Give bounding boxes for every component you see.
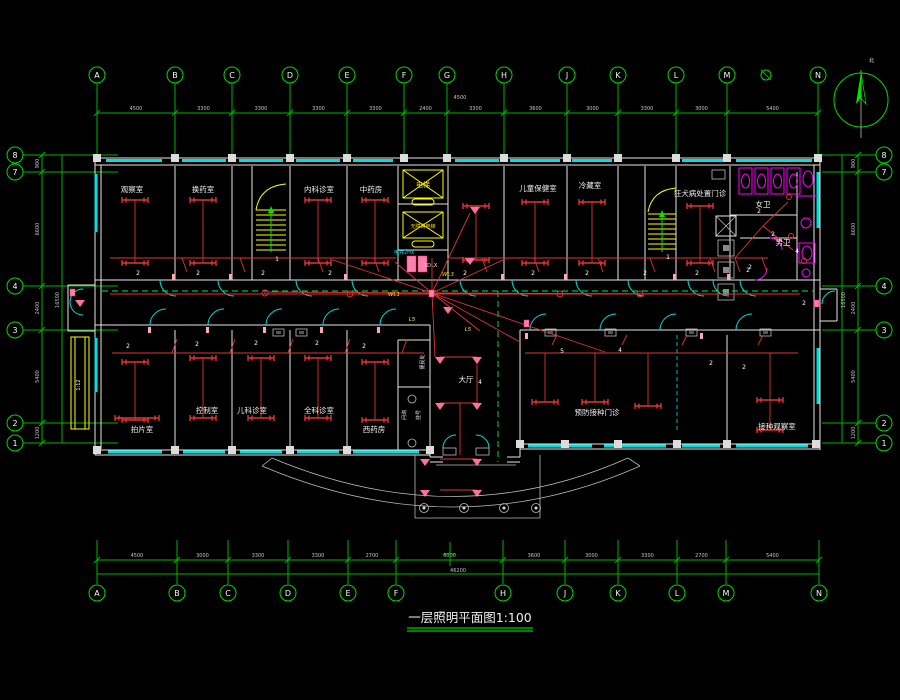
ramp-label: 1:12 <box>76 379 82 390</box>
switch-label: 2 <box>362 343 366 350</box>
window <box>736 445 808 448</box>
dim-text: 4500 <box>454 95 467 101</box>
window <box>353 451 419 454</box>
room-label: 换药室 <box>192 184 215 194</box>
dim-text: 3000 <box>586 106 599 112</box>
door-arc <box>208 309 224 325</box>
window <box>95 174 98 232</box>
dim-text: 3300 <box>312 106 325 112</box>
shaft-x <box>716 216 736 236</box>
switch-label: 2 <box>261 270 265 277</box>
dim-text: 3300 <box>255 106 268 112</box>
switch-label: 2 <box>643 270 647 277</box>
switch-label: 2 <box>196 270 200 277</box>
wc-toilet <box>803 171 813 187</box>
vestibule-walls <box>68 285 837 331</box>
window <box>95 338 98 392</box>
window <box>182 159 226 162</box>
axis-label: K <box>615 71 621 80</box>
dim-text: 900 <box>851 159 857 169</box>
switch-label: 2 <box>195 341 199 348</box>
switch-tick <box>622 335 627 345</box>
wc-toilet <box>774 174 782 188</box>
downlight <box>472 403 482 410</box>
room-label: 中药房 <box>360 184 383 194</box>
switch-tick <box>650 258 655 272</box>
dim-text: 3000 <box>695 106 708 112</box>
column <box>171 154 179 162</box>
axis-label: H <box>500 589 506 598</box>
room-label: 冷藏室 <box>579 180 602 190</box>
axis-label: C <box>229 71 235 80</box>
shaft-label: 电井2HX <box>394 249 415 256</box>
switch-label: 2 <box>695 270 699 277</box>
lighting-fixtures <box>70 197 819 497</box>
room-label: 内科诊室 <box>304 184 334 194</box>
axis-label: A <box>94 71 100 80</box>
wire-tag: L5 <box>409 317 416 323</box>
column <box>228 446 236 454</box>
axis-label: A <box>94 589 100 598</box>
dim-text: 3300 <box>312 553 325 559</box>
wall-vent-core <box>689 331 694 334</box>
axis-label: B <box>174 589 180 598</box>
door-jamb <box>172 274 175 280</box>
wc-sink <box>802 269 810 277</box>
outlet-box <box>524 320 529 327</box>
door-jamb <box>727 274 730 280</box>
dim-text: 6600 <box>851 223 857 236</box>
window <box>108 451 162 454</box>
room-label: 西药房 <box>363 424 386 434</box>
switch-label: 2 <box>802 300 806 307</box>
portico-column-core <box>503 507 506 510</box>
title-block: 一层照明平面图1:100 <box>407 610 533 631</box>
dim-text: 3300 <box>369 106 382 112</box>
window <box>240 451 282 454</box>
axis-label: J <box>565 71 568 80</box>
axis-label: E <box>345 589 350 598</box>
dim-text: 3300 <box>252 553 265 559</box>
north-needle-half <box>856 72 861 104</box>
downlight <box>470 207 480 214</box>
counter-fixture <box>408 395 416 403</box>
switch-label: 2 <box>136 270 140 277</box>
wc-toilet <box>790 174 798 188</box>
door-jamb <box>320 327 323 333</box>
column <box>228 154 236 162</box>
switch-label: 2 <box>126 343 130 350</box>
dim-text: 5400 <box>766 106 779 112</box>
window <box>817 348 820 404</box>
window <box>353 159 393 162</box>
room-label: 狂犬病处置门诊 <box>674 188 727 198</box>
column <box>516 440 524 448</box>
portico-column-core <box>423 507 426 510</box>
door-jamb <box>377 327 380 333</box>
dim-text: 2700 <box>695 553 708 559</box>
wc-toilet <box>742 174 750 188</box>
elevator-label: 电梯 <box>416 180 430 189</box>
dim-text: 4500 <box>130 106 143 112</box>
downlight <box>75 300 85 307</box>
axis-label: E <box>344 71 349 80</box>
registration-label: 挂号 <box>415 410 422 420</box>
entrance-door-leaf <box>443 448 456 455</box>
switch-tick <box>552 335 557 345</box>
dim-text: 900 <box>35 159 41 169</box>
door-jamb <box>564 274 567 280</box>
dim-text: 16500 <box>841 292 847 308</box>
column <box>171 446 179 454</box>
switch-label: 2 <box>531 270 535 277</box>
dim-text: 3300 <box>641 106 654 112</box>
downlight <box>472 357 482 364</box>
column <box>343 154 351 162</box>
door-jamb <box>344 274 347 280</box>
switch-tick <box>762 258 767 272</box>
axis-label: M <box>723 589 730 598</box>
axis-label: 7 <box>12 168 17 177</box>
landings-portico <box>252 258 676 518</box>
door-jamb <box>673 274 676 280</box>
entrance-door-leaf <box>476 448 489 455</box>
switch-label: 2 <box>709 360 713 367</box>
panel-label: 1DLX <box>424 263 438 269</box>
switch-tick <box>182 258 187 272</box>
window <box>297 451 339 454</box>
window <box>106 159 162 162</box>
axis-label: B <box>172 71 178 80</box>
axis-label: 2 <box>12 419 17 428</box>
floorplan-canvas: ABCDEFGHJKLMNABCDEFHJKLMN874321874321 45… <box>0 0 900 700</box>
wc-stall <box>755 168 768 194</box>
entrance-marks <box>444 542 503 566</box>
dim-text: 2700 <box>366 553 379 559</box>
corridor-walls <box>95 280 820 330</box>
switch-tick <box>758 335 763 345</box>
column <box>426 446 434 454</box>
door-jamb <box>148 327 151 333</box>
dim-text: 3000 <box>585 553 598 559</box>
outlet-box <box>70 289 75 296</box>
switch-tick <box>318 258 323 272</box>
dim-text: 3300 <box>641 553 654 559</box>
toilet-wiring <box>735 202 793 258</box>
axis-label: D <box>285 589 291 598</box>
axis-label: H <box>501 71 507 80</box>
room-label: 控制室 <box>196 405 219 415</box>
dim-text: 3600 <box>529 106 542 112</box>
door-jamb <box>700 333 703 339</box>
window <box>604 445 666 448</box>
pipe-shaft-core <box>723 267 729 273</box>
axis-label: D <box>287 71 293 80</box>
small-labels: 2222222222222222222224445WL1L5L5WL3 <box>126 208 806 386</box>
ceiling-lamp-dot <box>349 293 351 295</box>
column <box>343 446 351 454</box>
column <box>93 154 101 162</box>
column <box>723 154 731 162</box>
circuit-label: 5 <box>560 348 564 355</box>
axis-label: C <box>225 589 231 598</box>
dim-text: 16500 <box>55 292 61 308</box>
room-label: 拍片室 <box>131 424 154 434</box>
downlight <box>420 459 430 466</box>
axis-label: F <box>402 71 407 80</box>
column <box>400 154 408 162</box>
dim-text: 2400 <box>35 302 41 315</box>
north-label: 北 <box>869 57 874 64</box>
axis-label: J <box>563 589 566 598</box>
exhaust-fan <box>712 170 725 179</box>
convenience-label: 便民处 <box>419 354 426 369</box>
wire-tag: WL3 <box>442 272 455 278</box>
switch-label: 2 <box>254 340 258 347</box>
axis-label: 7 <box>881 168 886 177</box>
window <box>239 159 283 162</box>
column <box>93 446 101 454</box>
outlet <box>787 195 792 200</box>
column <box>286 446 294 454</box>
door-jamb <box>501 274 504 280</box>
column <box>443 154 451 162</box>
axis-label: 8 <box>881 151 886 160</box>
ceiling-lamp-dot <box>264 292 266 294</box>
homerun-wire <box>432 293 435 357</box>
dim-text: 3600 <box>528 553 541 559</box>
axis-label: N <box>815 71 821 80</box>
lower-partitions <box>175 330 727 452</box>
room-labels: 问询 挂号 便民处 1:12 1 1 观察室换药室内科诊室中药房儿童保健室冷藏室… <box>76 180 796 434</box>
wall-vent-core <box>763 331 768 334</box>
switch-tick <box>735 258 740 272</box>
column <box>812 440 820 448</box>
outlet-box <box>429 290 434 297</box>
dim-text: 1200 <box>851 427 857 440</box>
switch-label: 2 <box>328 270 332 277</box>
counter-fixture <box>408 439 416 447</box>
switch-tick <box>682 335 687 345</box>
room-label: 观察室 <box>121 184 144 194</box>
switch-label: 2 <box>757 208 761 215</box>
column <box>286 154 294 162</box>
north-needle-half <box>861 72 866 104</box>
dim-text: 3300 <box>469 106 482 112</box>
door-arc <box>660 314 676 330</box>
wire-tag: L5 <box>465 327 472 333</box>
switch-label: 2 <box>315 340 319 347</box>
dim-text: 2400 <box>851 302 857 315</box>
column <box>673 440 681 448</box>
switch-tick <box>240 258 245 272</box>
room-label: 预防接种门诊 <box>575 407 620 417</box>
wire-tag: WL1 <box>388 292 400 298</box>
switch-label: 2 <box>771 231 775 238</box>
door-jamb <box>229 274 232 280</box>
column <box>500 154 508 162</box>
window <box>183 451 225 454</box>
axis-label: N <box>816 589 822 598</box>
elevator2-label: 无障碍电梯 <box>410 223 435 230</box>
downlight <box>435 403 445 410</box>
dim-text: 1200 <box>35 427 41 440</box>
dim-text: 5400 <box>851 370 857 383</box>
wc-stall <box>771 168 784 194</box>
axis-label: G <box>444 71 450 80</box>
room-label: 儿科诊室 <box>237 405 267 415</box>
column <box>563 154 571 162</box>
window <box>296 159 340 162</box>
door-arc <box>600 314 616 330</box>
dim-text: 46200 <box>450 568 466 574</box>
dim-text: 3000 <box>196 553 209 559</box>
axis-label: 4 <box>881 282 886 291</box>
homerun-wire <box>268 292 432 293</box>
dim-text: 5400 <box>766 553 779 559</box>
dim-text: 6600 <box>35 223 41 236</box>
north-arrow: 北 <box>834 57 888 138</box>
circuit-label: 4 <box>478 379 482 386</box>
room-label: 全科诊室 <box>304 405 334 415</box>
door-arc <box>70 289 835 448</box>
door-arc <box>150 309 166 325</box>
column <box>561 440 569 448</box>
window <box>817 172 820 228</box>
room-label: 男卫 <box>776 238 791 247</box>
column <box>614 154 622 162</box>
column <box>672 154 680 162</box>
homerun-wire <box>432 213 470 293</box>
circuit-label: 4 <box>618 347 622 354</box>
elevator2-counterweight <box>412 241 434 247</box>
door-arc <box>736 314 752 330</box>
door-jamb <box>206 327 209 333</box>
circuit-label: 4 <box>795 248 799 255</box>
homerun-wire <box>432 293 480 331</box>
wall-vent-core <box>608 331 613 334</box>
axis-label: 3 <box>12 326 17 335</box>
wc-stall <box>787 168 800 194</box>
column <box>723 440 731 448</box>
title-underline <box>407 628 533 631</box>
axis-label: 8 <box>12 151 17 160</box>
wc-sink <box>801 218 811 228</box>
window <box>572 159 612 162</box>
dim-text: 5400 <box>35 370 41 383</box>
axis-label: K <box>615 589 621 598</box>
room-label: 大厅 <box>459 374 474 384</box>
stair-number: 1 <box>666 254 670 261</box>
axis-label: 3 <box>881 326 886 335</box>
dim-text: 4500 <box>131 553 144 559</box>
switch-tick <box>402 339 407 353</box>
window <box>736 159 812 162</box>
door-arc <box>380 309 396 325</box>
portico-column-core <box>535 507 538 510</box>
wall-vent-core <box>299 331 304 334</box>
stairs <box>256 184 676 252</box>
axis-label: 1 <box>881 439 886 448</box>
window <box>510 159 560 162</box>
dim-text: 3300 <box>197 106 210 112</box>
door-arc <box>266 309 282 325</box>
column <box>814 154 822 162</box>
axis-label: L <box>675 589 680 598</box>
doors <box>70 274 835 455</box>
switch-label: 2 <box>463 270 467 277</box>
wc-stall <box>739 168 752 194</box>
axis-label: 2 <box>881 419 886 428</box>
room-label: 接种观察室 <box>758 421 796 431</box>
bottom-walls <box>95 325 820 462</box>
downlight <box>435 357 445 364</box>
switch-label: 2 <box>748 264 752 271</box>
axis-label: 1 <box>12 439 17 448</box>
switch-label: 2 <box>742 364 746 371</box>
pipe-shaft-core <box>723 245 729 251</box>
walls <box>68 158 837 518</box>
elevators: 电梯 无障碍电梯 电井2HX 1DLX <box>394 170 443 272</box>
window <box>455 159 499 162</box>
wall-vent-core <box>276 331 281 334</box>
column <box>614 440 622 448</box>
wc-toilet <box>802 246 812 260</box>
drawing-title: 一层照明平面图1:100 <box>408 610 532 625</box>
cad-viewport: ABCDEFGHJKLMNABCDEFHJKLMN874321874321 45… <box>0 0 900 700</box>
wc-toilet <box>758 174 766 188</box>
switch-label: 2 <box>585 270 589 277</box>
axis-grid: ABCDEFGHJKLMNABCDEFHJKLMN874321874321 <box>7 67 892 601</box>
window <box>528 445 592 448</box>
axis-label: L <box>674 71 679 80</box>
distribution-box <box>407 256 416 272</box>
door-jamb <box>525 333 528 339</box>
room-label: 儿童保健室 <box>519 183 557 193</box>
outlet-box <box>814 300 819 307</box>
window <box>682 159 724 162</box>
stair-number: 1 <box>275 256 279 263</box>
door-jamb <box>263 327 266 333</box>
axis-label: M <box>724 71 731 80</box>
window <box>682 445 720 448</box>
inquiry-label: 问询 <box>401 410 408 420</box>
door-arc <box>323 309 339 325</box>
dim-text: 2400 <box>419 106 432 112</box>
homerun-wire <box>432 293 605 352</box>
homerun-wire <box>432 293 520 342</box>
axis-label: F <box>394 589 399 598</box>
axis-label: 4 <box>12 282 17 291</box>
